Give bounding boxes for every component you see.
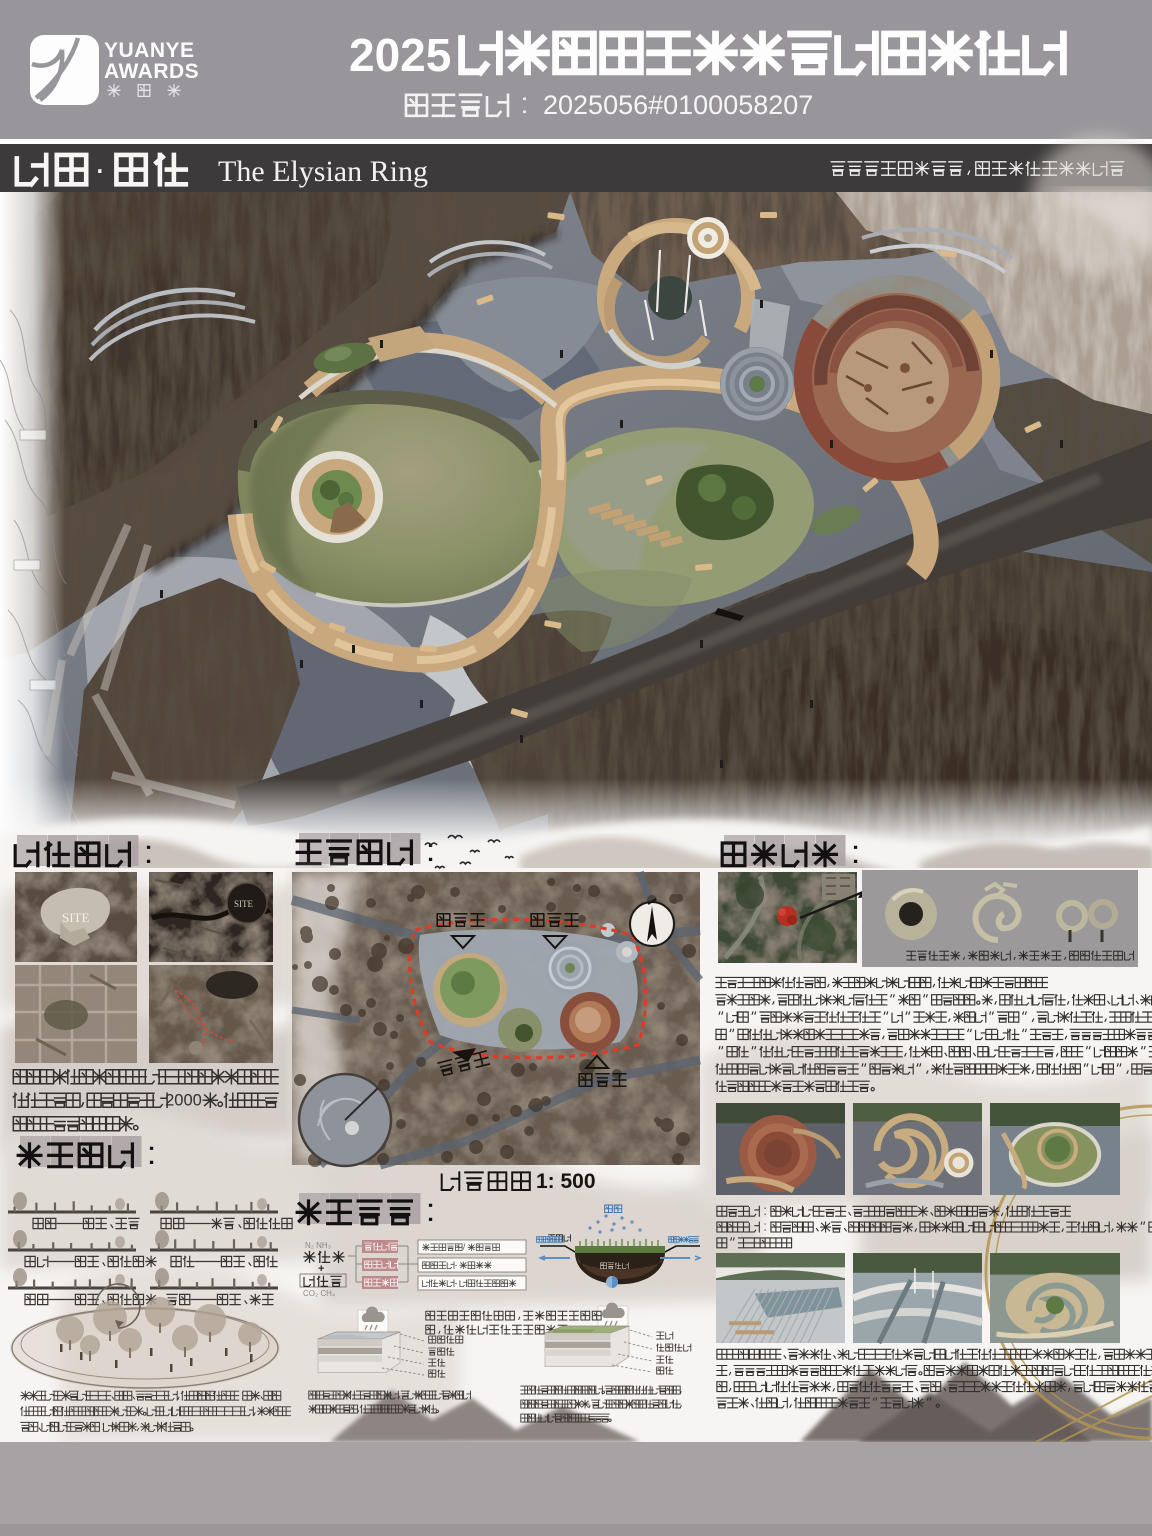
svg-text:2000: 2000 — [165, 1091, 202, 1109]
svg-text:2025056#0100058207: 2025056#0100058207 — [543, 90, 813, 120]
svg-text:2025: 2025 — [349, 29, 451, 81]
svg-text:SITE: SITE — [62, 910, 90, 925]
svg-text:1: 500: 1: 500 — [536, 1170, 596, 1193]
svg-text:-: - — [455, 1261, 458, 1270]
svg-text:+: + — [318, 1263, 324, 1275]
svg-text:-: - — [455, 1279, 458, 1288]
svg-text:SITE: SITE — [234, 899, 254, 909]
svg-text:·: · — [94, 149, 106, 188]
svg-text:CO₂ CH₄: CO₂ CH₄ — [303, 1289, 335, 1298]
svg-text:AWARDS: AWARDS — [104, 60, 199, 83]
svg-text:The Elysian Ring: The Elysian Ring — [218, 155, 428, 188]
svg-text:YUANYE: YUANYE — [104, 39, 195, 62]
svg-text:N₂ NH₃: N₂ NH₃ — [305, 1241, 331, 1250]
